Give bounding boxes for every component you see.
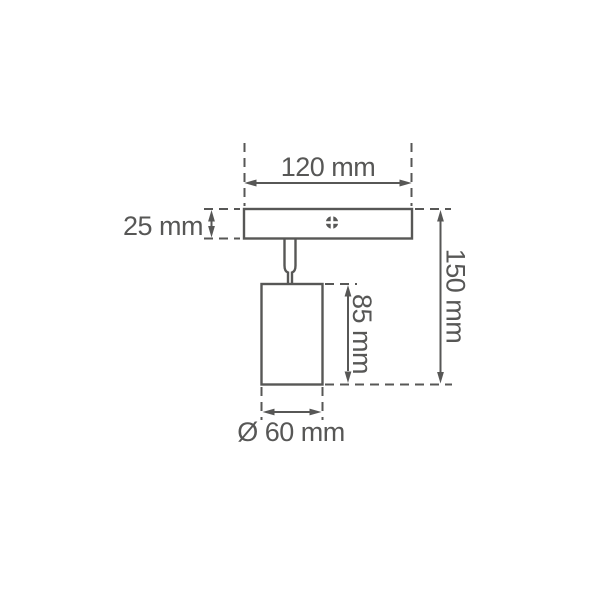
dimension-label-plate-width: 120 mm: [281, 152, 376, 182]
spotlight-body: [262, 284, 323, 385]
arrowhead-left-icon: [244, 180, 256, 187]
dimension-body-diameter: Ø 60 mm: [237, 387, 345, 447]
dimension-plate-thickness: 25 mm: [123, 209, 240, 241]
swivel-stem: [285, 239, 296, 283]
dimension-label-plate-thickness: 25 mm: [123, 211, 203, 241]
dimension-label-body-height: 85 mm: [347, 294, 377, 374]
spotlight-dimension-diagram: 120 mm 25 mm 150 mm 85 mm: [0, 0, 600, 600]
arrowhead-down-icon: [437, 372, 444, 384]
dimension-body-height: 85 mm: [325, 284, 377, 383]
stem-left-edge: [285, 239, 289, 283]
dimension-plate-width: 120 mm: [244, 143, 412, 206]
arrowhead-down-icon: [208, 226, 215, 238]
arrowhead-left-icon: [263, 409, 275, 416]
arrowhead-up-icon: [437, 210, 444, 222]
fixture-outline: [244, 209, 412, 385]
arrowhead-right-icon: [400, 180, 412, 187]
arrowhead-right-icon: [310, 409, 322, 416]
dimension-overall-height: 150 mm: [325, 209, 471, 385]
stem-right-edge: [292, 239, 296, 283]
dimension-label-overall-height: 150 mm: [441, 249, 471, 344]
screw-head-icon: [325, 215, 340, 230]
dimension-diagram-canvas: 120 mm 25 mm 150 mm 85 mm: [0, 0, 600, 600]
arrowhead-up-icon: [208, 210, 215, 222]
dimension-label-body-diameter: Ø 60 mm: [237, 417, 345, 447]
